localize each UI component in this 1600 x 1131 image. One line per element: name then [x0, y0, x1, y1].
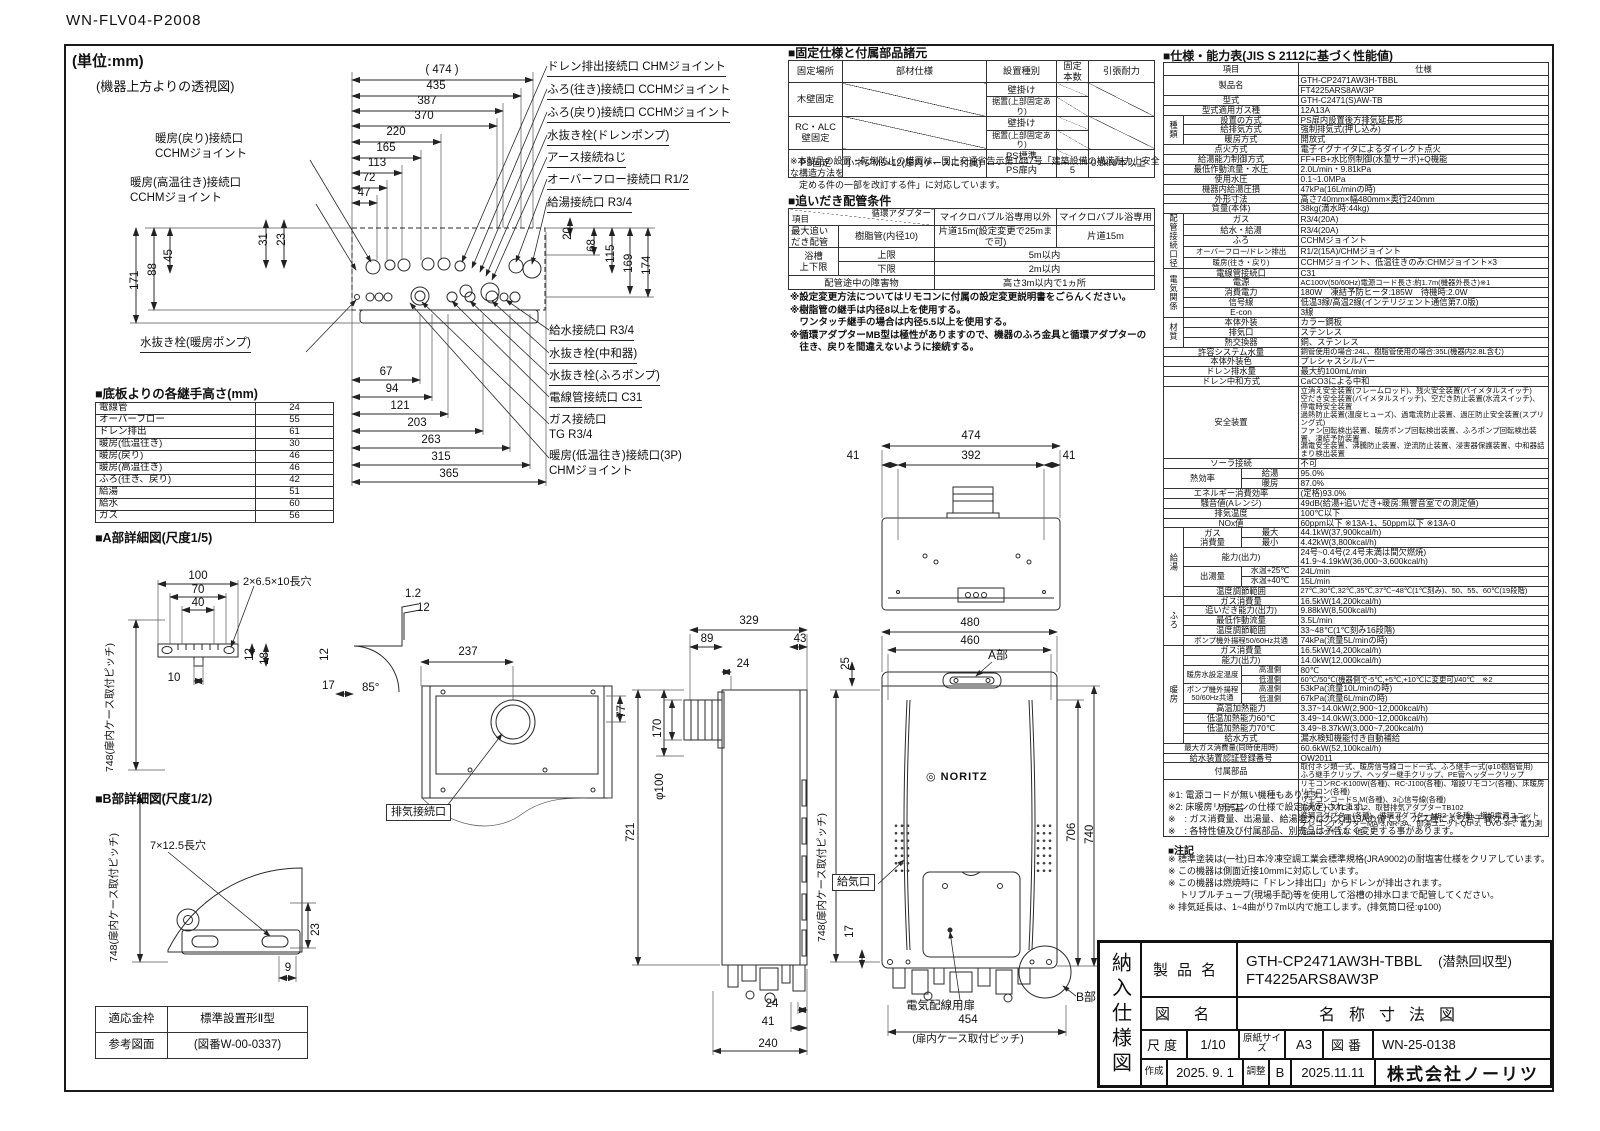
paper-size-label: 原紙サイズ — [1240, 1031, 1286, 1059]
table-cell: NOx値 — [1164, 518, 1299, 528]
table-cell: 給水・給湯 — [1184, 225, 1299, 236]
table-cell: 給水装置認証登録番号 — [1164, 753, 1299, 763]
table-cell: 給水 — [96, 499, 256, 511]
table-row: 出湯量水温+25℃24L/min — [1164, 566, 1549, 576]
table-cell: 質量(本体) — [1164, 204, 1299, 214]
callout-label: 電線管接続口 C31 — [549, 391, 642, 408]
dim-label: 480 — [940, 617, 1000, 631]
revised-date: 2025.11.11 — [1292, 1060, 1376, 1085]
table-row: 低温加熱能力60℃3.49~14.0kW(3,000~12,000kcal/h) — [1164, 714, 1549, 724]
table-cell: 配管途中の障害物 — [789, 276, 935, 290]
dim-label: 240 — [742, 1038, 794, 1052]
table-cell — [843, 116, 987, 149]
callout-label: 水抜き栓(ふろポンプ) — [549, 369, 660, 386]
table-cell: 給水方式 — [1184, 733, 1299, 743]
table-cell: 取付ネジ類一式、暖房信号線コード一式、ふろ継手一式(φ10樹脂管用) ふろ継手ク… — [1299, 763, 1549, 780]
callout-label: 水抜き栓(ドレンポンプ) — [547, 129, 669, 146]
table-cell: 騒音値(Aレンジ) — [1164, 498, 1299, 508]
table-cell: 温度調節範囲 — [1184, 626, 1299, 636]
dim-label: 18 — [259, 645, 273, 665]
table-cell: 機器内給湯圧損 — [1164, 184, 1299, 194]
table-row: 配管途中の障害物 高さ3m以内で1ヵ所 — [789, 276, 1155, 290]
callout-label: 給水接続口 R3/4 — [549, 324, 634, 341]
table-cell: 上限 — [839, 248, 935, 262]
dim-label: 41 — [838, 450, 868, 464]
dim-label: 24 — [728, 658, 758, 672]
table-cell: 高さ3m以内で1ヵ所 — [935, 276, 1155, 290]
table-cell: 設置種別 — [987, 61, 1057, 83]
table-cell: FT4225ARS8AW3P — [1299, 85, 1549, 95]
dim-label: 370 — [394, 110, 454, 124]
table-cell: 27℃,30℃,32℃,35℃,37℃~48℃(1℃刻み)、50、55、60℃(… — [1299, 586, 1549, 596]
table-cell: 銅、ステンレス — [1299, 337, 1549, 347]
table-row: 低温加熱能力70℃3.49~8.37kW(3,000~7,200kcal/h) — [1164, 723, 1549, 733]
table-cell: 61 — [256, 427, 334, 439]
dim-label: 12 — [319, 641, 333, 661]
table-row: ふろ(往き、戻り)42 — [96, 475, 334, 487]
pitch-note-label: (扉内ケース取付ピッチ) — [898, 1033, 1038, 1046]
table-row: 材質本体外装カラー鋼板 — [1164, 317, 1549, 327]
table-cell: 水温+25℃ — [1242, 566, 1299, 576]
spec-table: 項目 仕様 製品名GTH-CP2471AW3H-TBBLFT4225ARS8AW… — [1163, 62, 1549, 837]
table-row: 給水・給湯R3/4(20A) — [1164, 225, 1549, 236]
table-row: ふろCCHMジョイント — [1164, 235, 1549, 246]
table-cell: 据置(上部固定あり) — [987, 130, 1057, 149]
callout-label: 暖房(戻り)接続口 CCHMジョイント — [155, 132, 247, 163]
table-cell: 排気口 — [1184, 327, 1299, 337]
dim-label: 115 — [605, 235, 619, 263]
table-cell: 暖房(戻り) — [96, 451, 256, 463]
reheat-title: ■追いだき配管条件 — [788, 192, 891, 209]
dim-label: 329 — [718, 615, 780, 629]
table-cell: オーバーフロー — [96, 415, 256, 427]
table-cell: オーバーフロー/ドレン排出 — [1184, 246, 1299, 257]
product-name-value: GTH-CP2471AW3H-TBBL(潜熱回収型) FT4225ARS8AW3… — [1238, 943, 1550, 996]
table-cell: 引張耐力 — [1089, 61, 1155, 83]
dim-label: 17 — [322, 680, 335, 694]
table-cell: 種類 — [1164, 115, 1184, 145]
table-cell: 能力(出力) — [1184, 548, 1299, 567]
dim-label: 72 — [347, 172, 391, 186]
title-block: 納入仕様図 製品名 GTH-CP2471AW3H-TBBL(潜熱回収型) FT4… — [1097, 940, 1553, 1088]
table-cell: 出湯量 — [1184, 566, 1242, 586]
table-cell — [1057, 116, 1089, 130]
table-cell: 循環アダプター項目 — [789, 209, 935, 226]
table-cell: 14.0kW(12,000kcal/h) — [1299, 655, 1549, 665]
detail-a-title: ■A部詳細図(尺度1/5) — [95, 527, 212, 546]
table-row: 適応金枠標準設置形Ⅱ型 — [96, 1007, 308, 1033]
air-intake-label: 給気口 — [832, 874, 875, 891]
table-cell: 型式 — [1164, 95, 1299, 105]
table-cell: 適応金枠 — [96, 1007, 168, 1033]
vent-grid — [1035, 822, 1053, 874]
table-cell: FF+FB+水比例制御(水量サーボ)+Q機能 — [1299, 155, 1549, 165]
dim-label: 706 — [1066, 812, 1080, 842]
table-row: 給水60 — [96, 499, 334, 511]
table-cell: 38kg(満水時:44kg) — [1299, 204, 1549, 214]
dim-label: 460 — [940, 635, 1000, 649]
dim-label: 17 — [844, 916, 858, 938]
table-cell: 87.0% — [1299, 479, 1549, 489]
table-row: 質量(本体)38kg(満水時:44kg) — [1164, 204, 1549, 214]
table-cell: 2m以内 — [935, 262, 1155, 276]
doc-type-label: 納入仕様図 — [1100, 943, 1142, 1085]
table-cell: R1/2(15A)/CHMジョイント — [1299, 246, 1549, 257]
table-cell: 片道15m(設定変更で25mまで可) — [935, 226, 1057, 248]
table-cell: 高温側 — [1242, 684, 1299, 694]
table-row: 機器内給湯圧損47kPa(16L/minの時) — [1164, 184, 1549, 194]
scale-row: 尺度 1/10 原紙サイズ A3 図番 WN-25-0138 — [1142, 1031, 1550, 1061]
dim-label: 454 — [940, 1014, 996, 1028]
table-row: 参考図面(図番W-00-0337) — [96, 1033, 308, 1059]
table-cell: 片道15m — [1057, 226, 1155, 248]
table-row: 給湯51 — [96, 487, 334, 499]
table-cell: C31 — [1299, 268, 1549, 278]
dim-label: 392 — [944, 450, 998, 464]
dim-label: 721 — [625, 812, 639, 842]
table-cell: 樹脂管(内径10) — [839, 226, 935, 248]
table-cell: 型式適用ガス種 — [1164, 105, 1299, 115]
table-cell: 熱交換器 — [1184, 337, 1299, 347]
table-cell: ドレン中和方式 — [1164, 377, 1299, 387]
table-row: 使用水圧0.1~1.0MPa — [1164, 174, 1549, 184]
table-row: ガス56 — [96, 511, 334, 523]
pitch-dim-label: 748(扉内ケース取付ピッチ) — [106, 792, 121, 962]
table-cell: 部材仕様 — [843, 61, 987, 83]
remarks-notes: ※ 標準塗装は(一社)日本冷凍空調工業会標準規格(JRA9002)の耐塩害仕様を… — [1168, 854, 1552, 913]
created-date: 2025. 9. 1 — [1168, 1060, 1244, 1085]
table-cell — [1057, 83, 1089, 97]
pitch-dim-label: 748(扉内ケース取付ピッチ) — [102, 612, 117, 772]
table-cell: 能力(出力) — [1184, 655, 1299, 665]
table-row: 最大ガス消費量(同時使用時)60.6kW(52,100kcal/h) — [1164, 743, 1549, 753]
callout-label: ふろ(往き)接続口 CCHMジョイント — [547, 83, 730, 100]
table-cell: 不可 — [1299, 459, 1549, 469]
drawing-name-value: 名称寸法図 — [1238, 998, 1550, 1028]
table-cell: 51 — [256, 487, 334, 499]
dim-label: φ100 — [654, 758, 668, 800]
paper-size-value: A3 — [1286, 1031, 1324, 1059]
product-line-2: FT4225ARS8AW3P — [1246, 971, 1542, 988]
table-row: 製品名GTH-CP2471AW3H-TBBL — [1164, 76, 1549, 86]
table-cell: (図番W-00-0337) — [168, 1033, 308, 1059]
callout-label: ドレン排出接続口 CHMジョイント — [547, 60, 726, 77]
table-cell: 据置(上部固定あり) — [987, 97, 1057, 116]
drawing-name-row: 図名 名称寸法図 — [1142, 998, 1550, 1030]
table-cell: 固定場所 — [789, 61, 843, 83]
table-cell: 16.5kW(14,200kcal/h) — [1299, 645, 1549, 655]
table-cell: 5m以内 — [935, 248, 1155, 262]
table-cell: ステンレス — [1299, 327, 1549, 337]
table-row: 排気口ステンレス — [1164, 327, 1549, 337]
dim-label: 68 — [586, 230, 600, 252]
table-row: 固定場所 部材仕様 設置種別 固定本数 引張耐力 — [789, 61, 1155, 83]
table-row: 項目 仕様 — [1164, 63, 1549, 76]
dim-label: 237 — [438, 646, 498, 660]
callout-label: アース接続ねじ — [547, 151, 626, 168]
table-row: 温度調節範囲27℃,30℃,32℃,35℃,37℃~48℃(1℃刻み)、50、5… — [1164, 586, 1549, 596]
dim-label: 45 — [163, 240, 177, 262]
dim-label: 70 — [178, 584, 218, 598]
dim-label: 12 — [417, 602, 430, 616]
table-cell: 47kPa(16L/minの時) — [1299, 184, 1549, 194]
table-row: 騒音値(Aレンジ)49dB(給湯+追いだき+暖房:無響音室での測定値) — [1164, 498, 1549, 508]
table-cell: CCHMジョイント — [1299, 235, 1549, 246]
dim-label: 171 — [129, 260, 143, 290]
table-row: 能力(出力)14.0kW(12,000kcal/h) — [1164, 655, 1549, 665]
callout-label: 水抜き栓(中和器) — [549, 347, 637, 364]
reheat-notes: ※設定変更方法についてはリモコンに付属の設定変更説明書をごらんください。 ※樹脂… — [790, 292, 1162, 355]
table-cell: 46 — [256, 463, 334, 475]
callout-label: ガス接続口 TG R3/4 — [549, 413, 607, 444]
table-cell: 電気関係 — [1164, 268, 1184, 317]
dim-label: 94 — [372, 383, 412, 397]
title-block-main: 製品名 GTH-CP2471AW3H-TBBL(潜熱回収型) FT4225ARS… — [1142, 943, 1550, 1085]
table-cell: ふろ — [1164, 596, 1184, 645]
table-cell: 標準設置形Ⅱ型 — [168, 1007, 308, 1033]
table-cell: 56 — [256, 511, 334, 523]
callout-label: ふろ(戻り)接続口 CCHMジョイント — [547, 106, 730, 123]
table-cell: 最低作動流量・水圧 — [1164, 164, 1299, 174]
dim-label: 315 — [416, 451, 466, 465]
table-cell: 24L/min — [1299, 566, 1549, 576]
dim-label: 9 — [278, 962, 298, 976]
table-row: ポンプ機外揚程50/60Hz共通74kPa(流量5L/minの時) — [1164, 636, 1549, 646]
dim-label: 41 — [1054, 450, 1084, 464]
table-cell: 安全装置 — [1164, 387, 1299, 459]
table-row: 型式適用ガス種12A13A — [1164, 105, 1549, 115]
table-cell: ドレン排出 — [96, 427, 256, 439]
dim-label: 165 — [356, 142, 416, 156]
table-row: 暖房(高温往き)46 — [96, 463, 334, 475]
table-row: 電気関係電線管接続口C31 — [1164, 268, 1549, 278]
table-cell: 熱効率 — [1164, 469, 1242, 489]
table-cell: 水温+40℃ — [1242, 576, 1299, 586]
table-cell: カラー鋼板 — [1299, 317, 1549, 327]
table-cell: 42 — [256, 475, 334, 487]
table-cell: 使用水圧 — [1164, 174, 1299, 184]
joint-heights-table: 電線管24オーバーフロー55ドレン排出61暖房(低温往き)30暖房(戻り)46暖… — [95, 402, 334, 523]
table-cell: ポンプ機外揚程 50/60Hz共通 — [1184, 684, 1242, 704]
table-cell: 30 — [256, 439, 334, 451]
revised-label: 調整 — [1244, 1060, 1270, 1085]
date-row: 作成 2025. 9. 1 調整 B 2025.11.11 株式会社ノーリツ — [1142, 1060, 1550, 1085]
table-cell: ポンプ機外揚程50/60Hz共通 — [1184, 636, 1299, 646]
dim-label: 24 — [752, 998, 792, 1012]
table-cell: 壁掛け — [987, 116, 1057, 130]
dim-label: 1.2 — [405, 588, 421, 602]
table-cell: 製品名 — [1164, 76, 1299, 96]
table-cell: 温度調節範囲 — [1184, 586, 1299, 596]
table-row: 暖房水設定温度高温側80℃ — [1164, 665, 1549, 675]
dim-label: 12 — [244, 641, 258, 661]
table-cell: 60 — [256, 499, 334, 511]
table-cell: 低温加熱能力70℃ — [1184, 723, 1299, 733]
product-row: 製品名 GTH-CP2471AW3H-TBBL(潜熱回収型) FT4225ARS… — [1142, 943, 1550, 998]
frame-table: 適応金枠標準設置形Ⅱ型参考図面(図番W-00-0337) — [95, 1006, 308, 1059]
table-row: オーバーフロー/ドレン排出R1/2(15A)/CHMジョイント — [1164, 246, 1549, 257]
dim-label: 263 — [406, 434, 456, 448]
dim-label: 203 — [392, 417, 442, 431]
table-cell: 12A13A — [1299, 105, 1549, 115]
table-cell: 排気温度 — [1164, 508, 1299, 518]
table-row: 型式GTH-C2471(S)AW-TB — [1164, 95, 1549, 105]
dim-label: 121 — [375, 400, 425, 414]
table-cell: 15L/min — [1299, 576, 1549, 586]
table-cell: 給湯 — [96, 487, 256, 499]
table-cell — [1089, 116, 1155, 149]
callout-label: オーバーフロー接続口 R1/2 — [547, 173, 689, 190]
table-row: 電線管24 — [96, 403, 334, 415]
callout-label: 暖房(低温往き)接続口(3P) CHMジョイント — [549, 449, 682, 480]
dim-label: 67 — [366, 366, 406, 380]
dim-label: ( 474 ) — [412, 64, 472, 78]
table-cell: 項目 — [1164, 63, 1299, 76]
table-cell: 付属部品 — [1164, 763, 1299, 780]
table-row: 最低作動流量・水圧2.0L/min・9.81kPa — [1164, 164, 1549, 174]
table-cell: 漏水検知機能付き自動補給 — [1299, 733, 1549, 743]
dim-label: 25 — [840, 648, 854, 670]
dim-label: 77 — [616, 696, 630, 718]
table-cell: エネルギー消費効率 — [1164, 488, 1299, 498]
detail-a-ref-label: A部 — [988, 648, 1008, 662]
table-cell: マイクロバブル浴専用以外 — [935, 209, 1057, 226]
table-cell: 暖房(高温往き) — [96, 463, 256, 475]
dim-label: 10 — [162, 672, 186, 686]
scale-value: 1/10 — [1188, 1031, 1240, 1059]
table-row: 最大追い だき配管 樹脂管(内径10) 片道15m(設定変更で25mまで可) 片… — [789, 226, 1155, 248]
table-cell: 0.1~1.0MPa — [1299, 174, 1549, 184]
reheat-table: 循環アダプター項目 マイクロバブル浴専用以外 マイクロバブル浴専用 最大追い だ… — [788, 208, 1155, 290]
pitch-dim-label: 748(扉内ケース取付ピッチ) — [814, 747, 829, 942]
table-cell: 暖房 — [1242, 479, 1299, 489]
table-row: エネルギー消費効率(定格)93.0% — [1164, 488, 1549, 498]
table-cell — [1057, 130, 1089, 149]
table-row: ドレン排出61 — [96, 427, 334, 439]
table-cell: 電線管 — [96, 403, 256, 415]
table-cell: 暖房(低温往き) — [96, 439, 256, 451]
joint-heights-title: ■底板よりの各継手高さ(mm) — [95, 383, 258, 402]
noritz-mark-icon: ◎ — [926, 771, 937, 783]
exhaust-port-label: 排気接続口 — [386, 804, 451, 821]
table-row: 熱交換器銅、ステンレス — [1164, 337, 1549, 347]
dim-label: 220 — [366, 126, 426, 140]
scale-label: 尺度 — [1142, 1031, 1188, 1059]
table-row: 給排気方式強制排気式(押し込み) — [1164, 125, 1549, 135]
table-row: E-con3線 — [1164, 308, 1549, 318]
dim-label: 20 — [562, 218, 576, 240]
dim-label: 23 — [310, 914, 324, 936]
table-cell: 配管 接続口径 — [1164, 214, 1184, 268]
drawing-sheet: WN-FLV04-P2008 (単位:mm) (機器上方よりの透視図) ( 47… — [0, 0, 1600, 1131]
table-row: 循環アダプター項目 マイクロバブル浴専用以外 マイクロバブル浴専用 — [789, 209, 1155, 226]
table-cell — [1057, 97, 1089, 116]
table-cell: 3.49~8.37kW(3,000~7,200kcal/h) — [1299, 723, 1549, 733]
table-cell: 浴槽 上下限 — [789, 248, 839, 276]
table-cell: 100℃以下 — [1299, 508, 1549, 518]
created-label: 作成 — [1142, 1060, 1168, 1085]
table-row: 能力(出力)24号~0.4号(2.4号未満は間欠燃焼) 41.9~4.19kW(… — [1164, 548, 1549, 567]
table-cell: 給湯 — [1164, 528, 1184, 596]
table-cell: ふろ(往き、戻り) — [96, 475, 256, 487]
table-cell: 2.0L/min・9.81kPa — [1299, 164, 1549, 174]
table-cell: 60.6kW(52,100kcal/h) — [1299, 743, 1549, 753]
table-cell: 80℃ — [1299, 665, 1549, 675]
table-row: 暖房ガス消費量16.5kW(14,200kcal/h) — [1164, 645, 1549, 655]
table-cell: 参考図面 — [96, 1033, 168, 1059]
table-row: ソーラ接続不可 — [1164, 459, 1549, 469]
unit-note: (単位:mm) — [72, 50, 144, 71]
dim-label: 174 — [641, 247, 655, 275]
table-cell: 49dB(給湯+追いだき+暖房:無響音室での測定値) — [1299, 498, 1549, 508]
dim-label: 169 — [623, 245, 637, 273]
table-cell: GTH-CP2471AW3H-TBBL — [1299, 76, 1549, 86]
table-cell: 3.49~14.0kW(3,000~12,000kcal/h) — [1299, 714, 1549, 724]
dim-label: 387 — [397, 95, 457, 109]
dim-label: 23 — [276, 224, 290, 246]
table-cell: 3線 — [1299, 308, 1549, 318]
table-cell: 木壁固定 — [789, 83, 843, 116]
callout-label: 水抜き栓(暖房ポンプ) — [140, 336, 251, 353]
dim-label: 170 — [652, 708, 666, 738]
table-row: RC・ALC 壁固定壁掛け — [789, 116, 1155, 130]
table-row: 熱効率給湯95.0% — [1164, 469, 1549, 479]
fixing-note: ※本製品の設置・転倒防止の措置は、国土交通省告示第1447号「建築設備の構造耐力… — [790, 156, 1160, 192]
table-cell: 74kPa(流量5L/minの時) — [1299, 636, 1549, 646]
dim-label: 435 — [406, 80, 466, 94]
table-cell: ガス消費量 — [1184, 645, 1299, 655]
table-cell: 壁掛け — [987, 83, 1057, 97]
table-cell: ふろ — [1184, 235, 1299, 246]
table-row: 安全装置立消え安全装置(フレームロッド)、残火安全装置(バイメタルスイッチ) 空… — [1164, 387, 1549, 459]
table-cell: ガス — [1184, 214, 1299, 225]
callout-label: 給湯接続口 R3/4 — [547, 196, 632, 213]
table-row: 給水方式漏水検知機能付き自動補給 — [1164, 733, 1549, 743]
hole-label: 7×12.5長穴 — [150, 840, 206, 853]
document-code: WN-FLV04-P2008 — [66, 12, 201, 29]
table-cell: RC・ALC 壁固定 — [789, 116, 843, 149]
table-row: 付属部品取付ネジ類一式、暖房信号線コード一式、ふろ継手一式(φ10樹脂管用) ふ… — [1164, 763, 1549, 780]
table-cell: 暖房 — [1164, 645, 1184, 743]
table-row: 信号線低温3線/高温2線(インテリジェント通信第7.0版) — [1164, 298, 1549, 308]
dim-label: 740 — [1084, 814, 1098, 844]
dim-label: 43 — [786, 633, 814, 647]
dim-label: 47 — [344, 187, 384, 201]
noritz-logo: ◎ NORITZ — [926, 770, 988, 783]
drawing-number-label: 図番 — [1324, 1031, 1374, 1059]
table-cell: 55 — [256, 415, 334, 427]
product-name-label: 製品名 — [1142, 943, 1238, 996]
callout-label: 暖房(高温往き)接続口 CCHMジョイント — [130, 176, 241, 207]
table-cell: 給湯能力制御方式 — [1164, 155, 1299, 165]
table-cell: 立消え安全装置(フレームロッド)、残火安全装置(バイメタルスイッチ) 空だき安全… — [1299, 387, 1549, 459]
table-cell: 最小 — [1242, 538, 1299, 548]
table-cell: 暖房(往き・戻り) — [1184, 257, 1299, 268]
dim-label: 365 — [424, 468, 474, 482]
table-cell: 低温3線/高温2線(インテリジェント通信第7.0版) — [1299, 298, 1549, 308]
detail-b-ref-label: B部 — [1076, 990, 1096, 1004]
table-cell: (定格)93.0% — [1299, 488, 1549, 498]
table-cell: ガス 消費量 — [1184, 528, 1242, 548]
table-cell: ソーラ接続 — [1164, 459, 1299, 469]
dim-label: 474 — [938, 430, 1004, 444]
table-cell — [843, 83, 987, 116]
table-row: オーバーフロー55 — [96, 415, 334, 427]
table-cell: R3/4(20A) — [1299, 214, 1549, 225]
table-cell: 固定本数 — [1057, 61, 1089, 83]
table-cell: E-con — [1184, 308, 1299, 318]
drawing-number-value: WN-25-0138 — [1374, 1031, 1550, 1059]
